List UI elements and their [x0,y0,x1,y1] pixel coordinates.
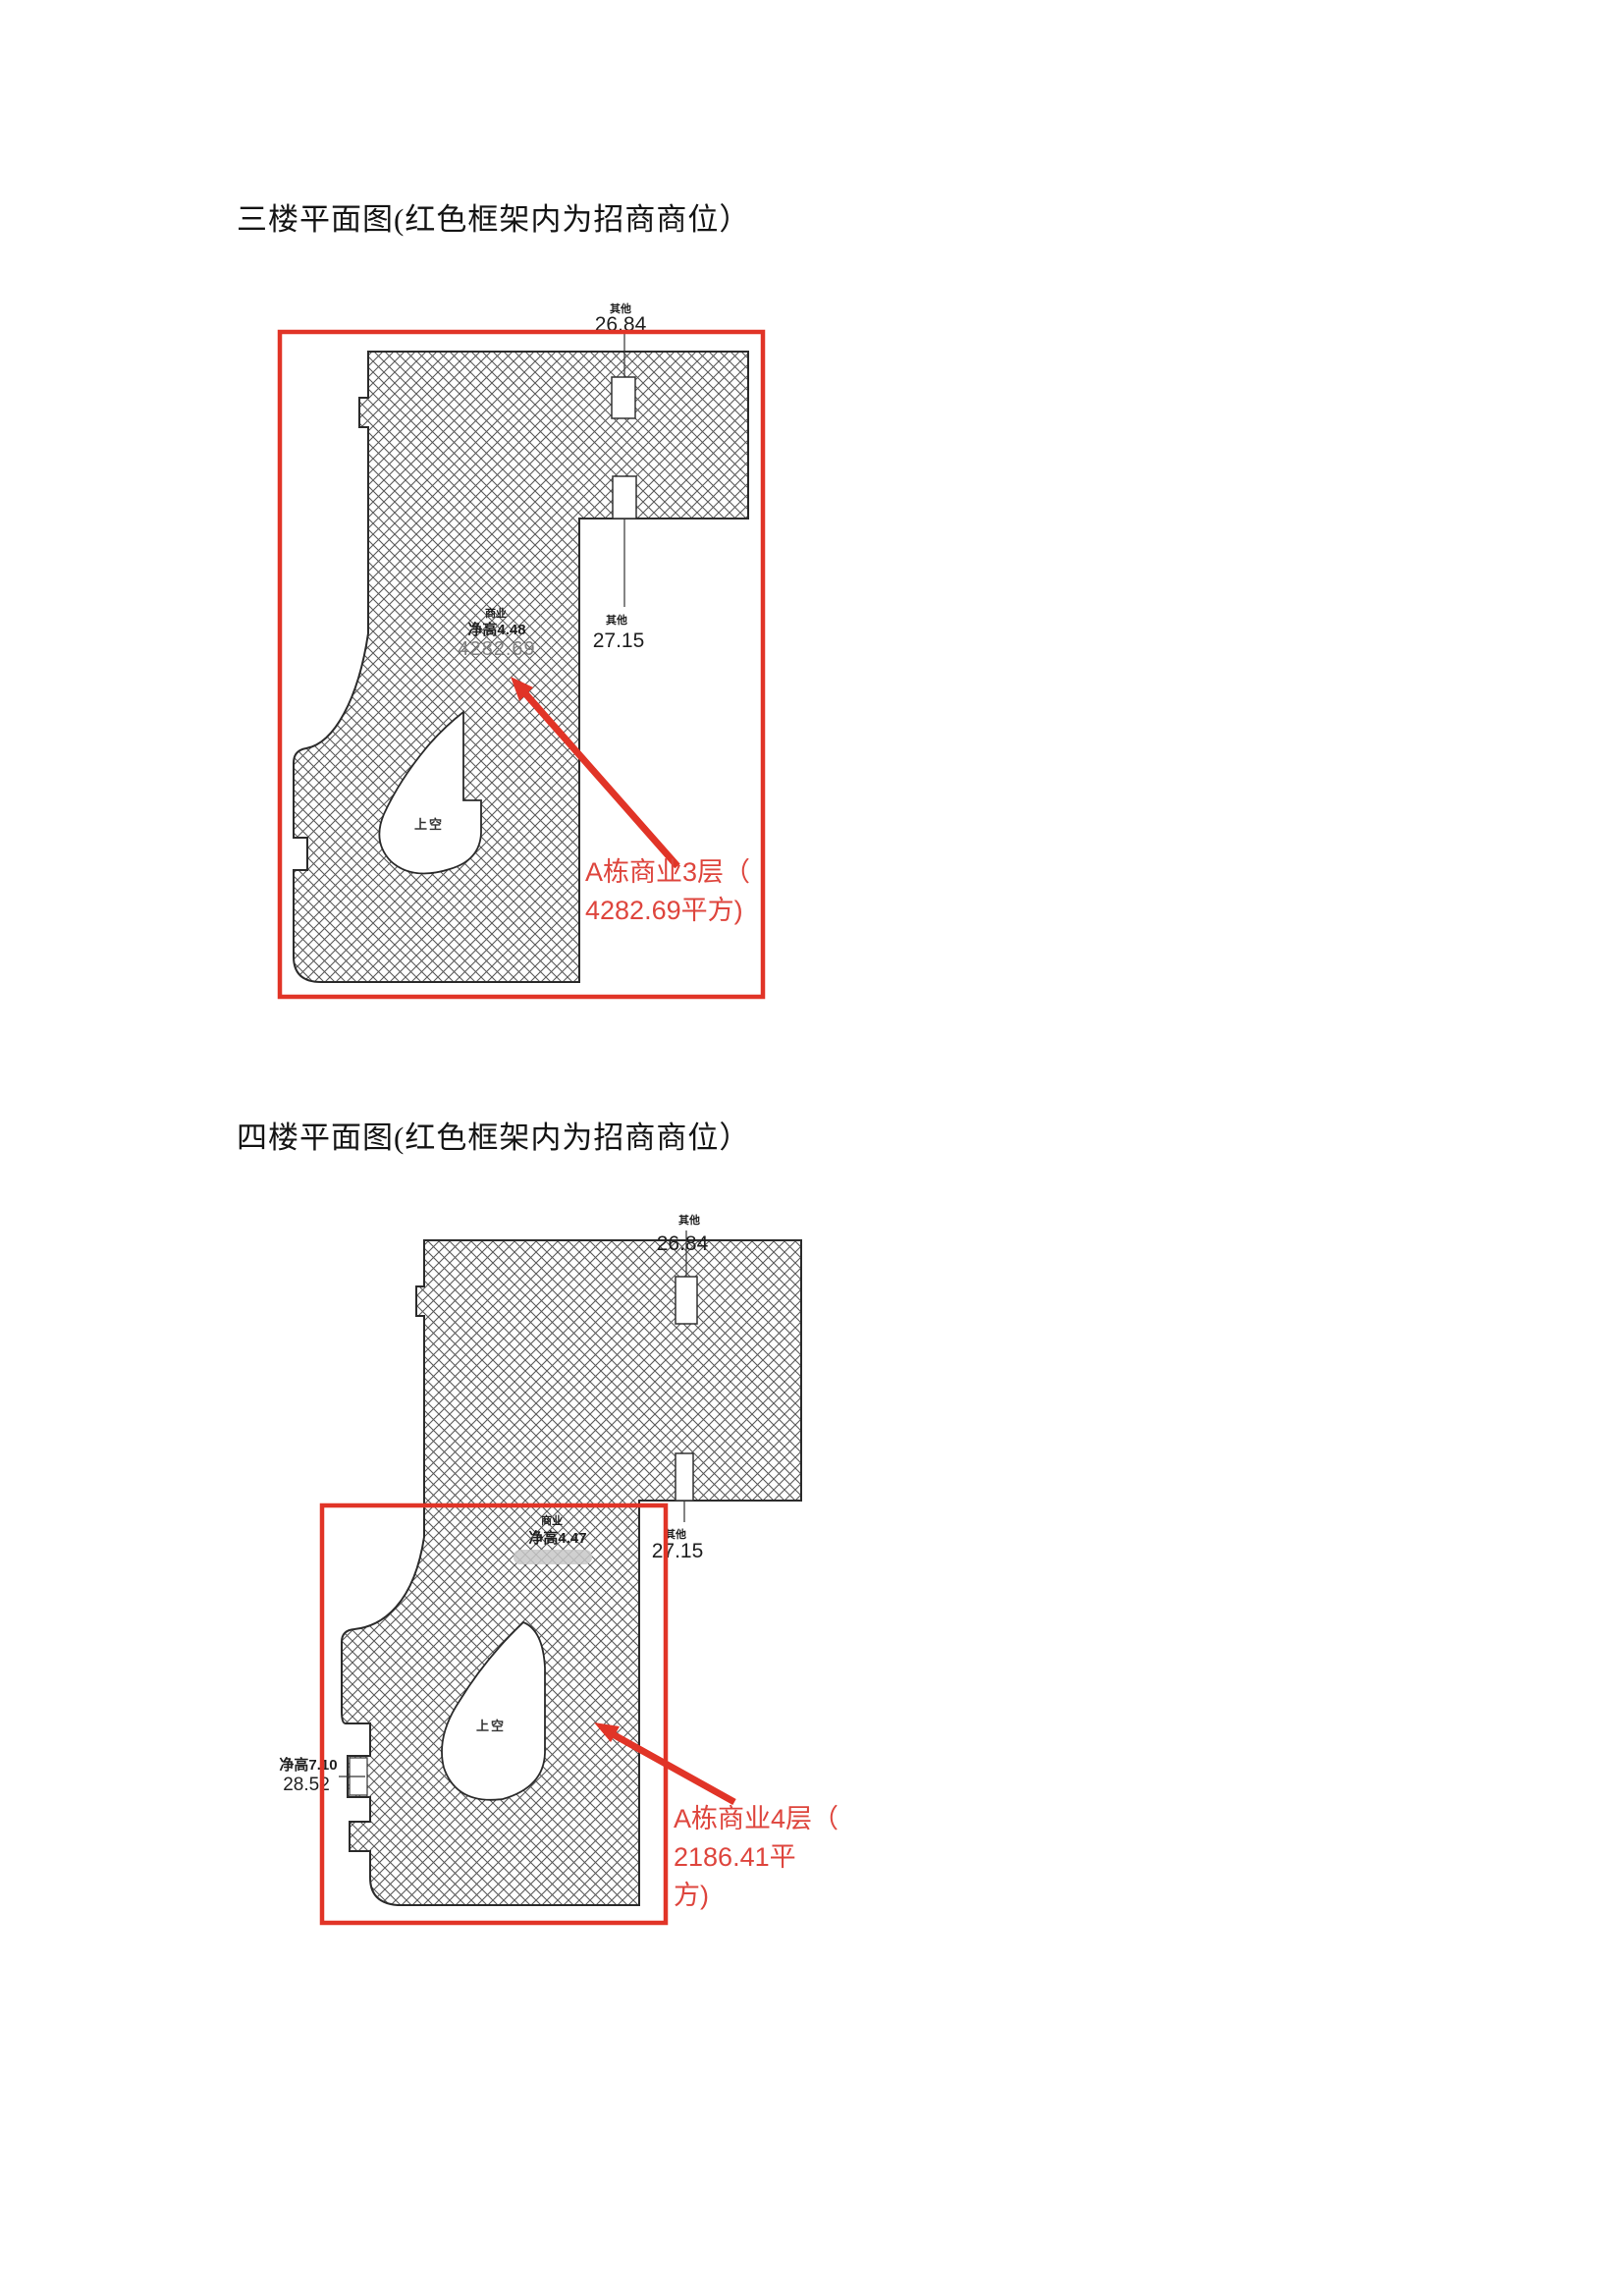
floor3-callout: A栋商业3层（ 4282.69平方) [585,853,750,930]
floor4-callout-line3: 方) [674,1877,839,1915]
floor3-shaft-top [612,377,635,418]
floor4-room-use: 商业 [541,1513,563,1527]
floor4-room-height: 净高4.47 [528,1529,586,1547]
document-page: 三楼平面图(红色框架内为招商商位） 上空 其他 26.84 其他 27.15 商… [0,0,1623,2296]
floor4-left-dim-label: 净高7.10 [279,1756,337,1774]
floor4-void-label: 上空 [476,1719,506,1733]
floor3-shaft-mid [613,476,636,519]
floor3-room-use: 商业 [485,606,507,620]
floor4-side-dim-value: 27.15 [652,1540,704,1562]
floor4-top-dim-value: 26.84 [657,1232,709,1255]
floor4-blurred-area-pill [514,1550,592,1564]
floor4-caption: 四楼平面图(红色框架内为招商商位） [237,1113,750,1157]
floor4-callout-line2: 2186.41平 [674,1838,839,1877]
floor3-caption: 三楼平面图(红色框架内为招商商位） [237,194,750,239]
floor3-room-height: 净高4.48 [467,621,525,638]
floor4-side-dim-label: 其他 [665,1527,686,1541]
floor4-shaft-top [676,1277,697,1324]
floor4-callout-line1: A栋商业4层（ [674,1800,839,1838]
floor4-shaft-mid [676,1453,693,1501]
floor4-callout: A栋商业4层（ 2186.41平 方) [674,1800,839,1915]
floor3-room-area: 4282.69 [458,638,535,660]
floor3-side-dim-value: 27.15 [593,629,645,652]
floor4-top-dim-label: 其他 [678,1213,700,1227]
floor3-callout-line2: 4282.69平方) [585,892,750,930]
floor3-side-dim-label: 其他 [606,613,627,627]
floor3-void-label: 上空 [414,817,444,832]
floor3-callout-line1: A栋商业3层（ [585,853,750,892]
